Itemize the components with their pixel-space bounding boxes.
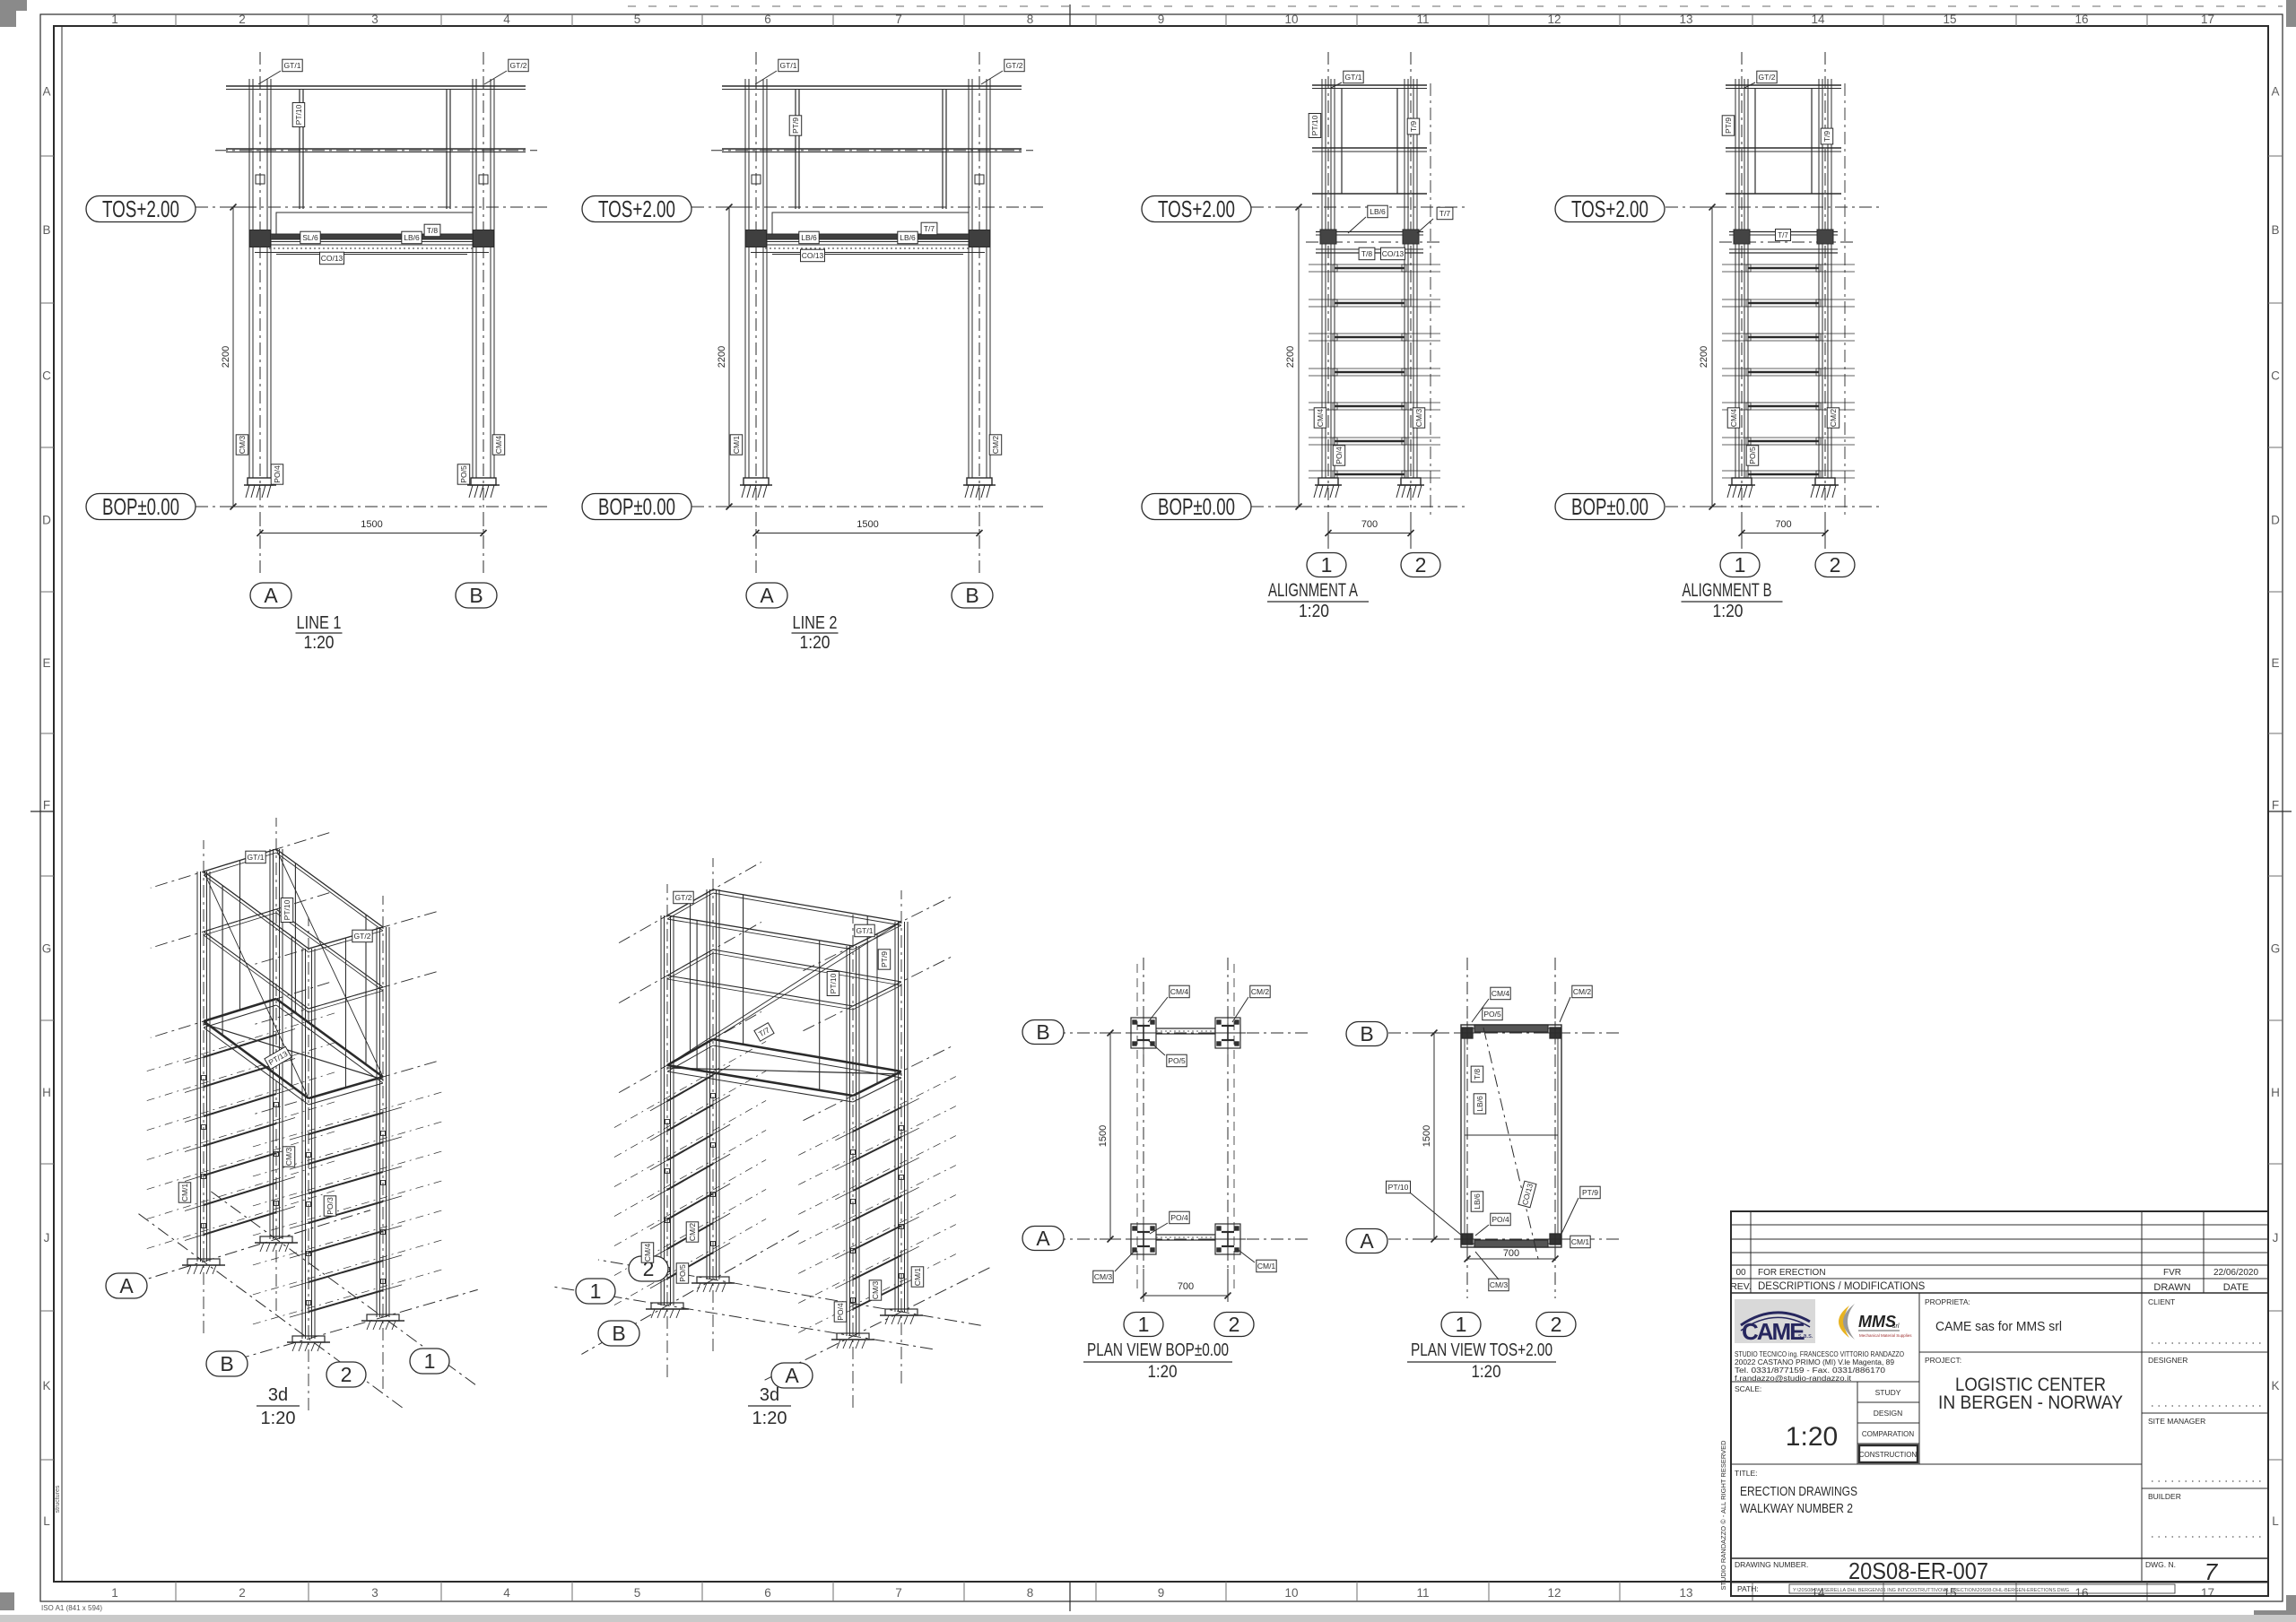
svg-text:BOP±0.00: BOP±0.00 — [598, 493, 675, 520]
svg-text:TOS+2.00: TOS+2.00 — [1571, 195, 1648, 222]
svg-text:B: B — [42, 223, 50, 237]
svg-text:CM/4: CM/4 — [494, 436, 503, 455]
svg-text:PLAN VIEW BOP±0.00: PLAN VIEW BOP±0.00 — [1087, 1340, 1229, 1360]
svg-text:C: C — [42, 369, 51, 383]
svg-text:SITE MANAGER: SITE MANAGER — [2148, 1417, 2205, 1426]
svg-text:1500: 1500 — [1098, 1125, 1109, 1147]
svg-text:CM/3: CM/3 — [238, 436, 247, 455]
svg-text:C: C — [2271, 369, 2280, 383]
svg-text:GT/2: GT/2 — [510, 61, 527, 70]
svg-text:1:20: 1:20 — [752, 1409, 787, 1428]
svg-text:A: A — [119, 1274, 134, 1297]
svg-text:CAME sas for MMS srl: CAME sas for MMS srl — [1935, 1320, 2062, 1334]
svg-text:16: 16 — [2074, 1586, 2088, 1600]
svg-text:PO/4: PO/4 — [273, 465, 282, 483]
svg-text:PT/9: PT/9 — [1724, 117, 1733, 134]
svg-text:LB/6: LB/6 — [404, 233, 420, 242]
svg-text:H: H — [2271, 1086, 2280, 1099]
svg-text:CM/4: CM/4 — [1316, 409, 1325, 428]
svg-text:2: 2 — [341, 1363, 352, 1386]
svg-text:PO/4: PO/4 — [1170, 1213, 1188, 1222]
svg-text:CM/2: CM/2 — [688, 1223, 697, 1242]
svg-text:CM/1: CM/1 — [913, 1268, 922, 1287]
svg-text:PT/10: PT/10 — [1388, 1183, 1409, 1192]
svg-text:STUDIO TECNICO ing. FRANCESCO: STUDIO TECNICO ing. FRANCESCO VITTORIO R… — [1735, 1350, 1904, 1358]
svg-text:T/7: T/7 — [1439, 209, 1451, 218]
svg-text:F: F — [43, 799, 50, 812]
svg-text:A: A — [42, 85, 50, 99]
svg-text:GT/2: GT/2 — [1006, 61, 1023, 70]
svg-text:A: A — [264, 584, 278, 607]
svg-text:13: 13 — [1679, 1586, 1692, 1600]
svg-text:D: D — [42, 514, 51, 527]
svg-text:2: 2 — [1551, 1313, 1562, 1336]
svg-text:GT/1: GT/1 — [284, 61, 301, 70]
svg-text:s.a.s.: s.a.s. — [1798, 1333, 1813, 1340]
svg-text:DESIGN: DESIGN — [1874, 1409, 1903, 1418]
svg-text:PATH:: PATH: — [1737, 1584, 1759, 1593]
svg-text:LB/6: LB/6 — [900, 233, 916, 242]
svg-text:GT/1: GT/1 — [780, 61, 797, 70]
svg-text:700: 700 — [1775, 519, 1791, 530]
svg-text:LB/6: LB/6 — [1475, 1096, 1484, 1112]
svg-text:TOS+2.00: TOS+2.00 — [598, 195, 675, 222]
svg-text:G: G — [2271, 942, 2281, 956]
svg-text:1: 1 — [590, 1279, 602, 1303]
svg-text:1:20: 1:20 — [800, 633, 831, 653]
svg-text:BOP±0.00: BOP±0.00 — [1158, 493, 1235, 520]
svg-text:PT/9: PT/9 — [880, 951, 889, 967]
svg-text:ALIGNMENT A: ALIGNMENT A — [1268, 580, 1358, 601]
svg-text:22/06/2020: 22/06/2020 — [2213, 1268, 2258, 1278]
svg-text:DWG. N.: DWG. N. — [2145, 1560, 2176, 1569]
svg-text:12: 12 — [1547, 1586, 1561, 1600]
svg-text:00: 00 — [1735, 1268, 1746, 1278]
svg-text:BOP±0.00: BOP±0.00 — [1571, 493, 1648, 520]
svg-text:PROJECT:: PROJECT: — [1925, 1356, 1961, 1365]
svg-text:T/7: T/7 — [1778, 231, 1788, 239]
svg-text:1:20: 1:20 — [1148, 1363, 1178, 1382]
svg-text:GT/1: GT/1 — [248, 853, 265, 862]
svg-text:2: 2 — [239, 1586, 246, 1600]
svg-text:1: 1 — [1321, 553, 1333, 577]
svg-text:G: G — [42, 942, 52, 956]
svg-text:1: 1 — [1735, 553, 1746, 577]
svg-text:PLAN VIEW TOS+2.00: PLAN VIEW TOS+2.00 — [1411, 1340, 1552, 1360]
svg-text:1: 1 — [424, 1349, 436, 1373]
svg-text:K: K — [42, 1379, 50, 1392]
svg-text:H: H — [42, 1086, 51, 1099]
svg-text:11: 11 — [1416, 1586, 1429, 1600]
svg-text:CM/1: CM/1 — [1571, 1237, 1590, 1246]
svg-text:CM/1: CM/1 — [1257, 1262, 1276, 1271]
svg-text:GT/1: GT/1 — [1345, 73, 1362, 82]
svg-text:DESIGNER: DESIGNER — [2148, 1356, 2187, 1365]
svg-text:3d: 3d — [268, 1385, 288, 1405]
svg-text:B: B — [2271, 223, 2279, 237]
svg-text:T/7: T/7 — [924, 224, 935, 233]
svg-text:CLIENT: CLIENT — [2148, 1297, 2175, 1306]
svg-text:DESCRIPTIONS / MODIFICATIONS: DESCRIPTIONS / MODIFICATIONS — [1758, 1281, 1926, 1292]
svg-text:1:20: 1:20 — [1472, 1363, 1501, 1382]
svg-text:1:20: 1:20 — [1786, 1422, 1838, 1452]
svg-text:L: L — [2272, 1514, 2279, 1528]
svg-text:1500: 1500 — [857, 519, 878, 530]
svg-text:PO/5: PO/5 — [678, 1264, 687, 1282]
svg-text:STUDIO RANDAZZO © - ALL RIGHT: STUDIO RANDAZZO © - ALL RIGHT RESERVED — [1719, 1440, 1727, 1591]
svg-text:CM/3: CM/3 — [871, 1281, 880, 1300]
svg-text:9: 9 — [1158, 13, 1165, 26]
svg-text:14: 14 — [1811, 13, 1825, 26]
svg-text:1: 1 — [111, 13, 118, 26]
svg-text:A: A — [2271, 85, 2279, 99]
svg-text:CM/2: CM/2 — [1251, 987, 1270, 996]
svg-text:structures: structures — [55, 1485, 61, 1513]
svg-text:BOP±0.00: BOP±0.00 — [102, 493, 179, 520]
svg-text:2: 2 — [239, 13, 246, 26]
svg-text:PT/10: PT/10 — [294, 104, 303, 125]
svg-text:6: 6 — [764, 13, 771, 26]
svg-text:BUILDER: BUILDER — [2148, 1492, 2181, 1501]
svg-text:CONSTRUCTION: CONSTRUCTION — [1859, 1451, 1918, 1459]
svg-text:STUDY: STUDY — [1875, 1388, 1901, 1397]
svg-text:4: 4 — [503, 1586, 510, 1600]
svg-text:CM/3: CM/3 — [284, 1148, 293, 1167]
svg-text:PT/9: PT/9 — [791, 117, 800, 134]
svg-text:WALKWAY NUMBER 2: WALKWAY NUMBER 2 — [1740, 1502, 1853, 1516]
svg-text:16: 16 — [2074, 13, 2088, 26]
svg-text:7: 7 — [895, 13, 902, 26]
svg-text:PO/5: PO/5 — [1748, 447, 1757, 464]
svg-text:700: 700 — [1178, 1281, 1194, 1292]
svg-text:20S08-ER-007: 20S08-ER-007 — [1848, 1557, 1988, 1584]
svg-text:B: B — [1036, 1020, 1049, 1044]
svg-text:CM/4: CM/4 — [643, 1244, 652, 1262]
svg-text:SCALE:: SCALE: — [1735, 1384, 1761, 1393]
svg-text:8: 8 — [1027, 1586, 1034, 1600]
svg-text:LINE 1: LINE 1 — [297, 613, 342, 633]
svg-text:CM/3: CM/3 — [1490, 1280, 1509, 1289]
svg-text:J: J — [2273, 1231, 2279, 1245]
svg-text:2200: 2200 — [1699, 346, 1709, 368]
svg-text:Y:\20S08 PASSERELLA DHL BERGEN: Y:\20S08 PASSERELLA DHL BERGEN\01 ING IN… — [1793, 1588, 2069, 1593]
svg-text:20022 CASTANO PRIMO (MI) V.le: 20022 CASTANO PRIMO (MI) V.le Magenta, 8… — [1735, 1358, 1894, 1366]
svg-text:15: 15 — [1943, 13, 1956, 26]
svg-text:FVR: FVR — [2163, 1268, 2181, 1278]
svg-text:12: 12 — [1547, 13, 1561, 26]
svg-text:PT/10: PT/10 — [283, 899, 291, 920]
svg-text:IN BERGEN - NORWAY: IN BERGEN - NORWAY — [1938, 1392, 2123, 1413]
svg-text:Tel. 0331/877159 - Fax. 0331/8: Tel. 0331/877159 - Fax. 0331/886170 — [1735, 1366, 1886, 1375]
svg-text:CM/1: CM/1 — [732, 436, 741, 455]
svg-text:T/8: T/8 — [427, 226, 439, 235]
svg-text:A: A — [1036, 1227, 1050, 1250]
svg-text:A: A — [760, 584, 774, 607]
svg-text:CM/3: CM/3 — [1414, 409, 1423, 428]
svg-text:DRAWN: DRAWN — [2153, 1282, 2190, 1293]
svg-text:SL/6: SL/6 — [302, 233, 318, 242]
svg-text:T/8: T/8 — [1473, 1069, 1482, 1080]
svg-text:CAME: CAME — [1742, 1318, 1805, 1345]
svg-text:3d: 3d — [760, 1385, 779, 1405]
svg-text:PO/5: PO/5 — [1168, 1056, 1186, 1065]
svg-text:2200: 2200 — [717, 346, 727, 368]
svg-text:MMS: MMS — [1858, 1313, 1896, 1331]
svg-text:1: 1 — [1138, 1313, 1150, 1336]
svg-text:B: B — [469, 584, 483, 607]
svg-text:PT/9: PT/9 — [1582, 1188, 1598, 1197]
svg-text:DATE: DATE — [2223, 1282, 2249, 1293]
svg-text:PO/5: PO/5 — [1483, 1010, 1501, 1019]
svg-text:CO/13: CO/13 — [1382, 249, 1405, 258]
svg-text:13: 13 — [1679, 13, 1692, 26]
svg-text:2: 2 — [1415, 553, 1427, 577]
svg-text:2: 2 — [1830, 553, 1841, 577]
svg-text:17: 17 — [2201, 1586, 2214, 1600]
svg-text:CO/13: CO/13 — [802, 251, 824, 260]
svg-text:srl: srl — [1892, 1323, 1900, 1330]
svg-text:E: E — [42, 656, 50, 670]
svg-text:F: F — [2272, 799, 2279, 812]
svg-text:1500: 1500 — [1422, 1125, 1432, 1147]
svg-text:17: 17 — [2201, 13, 2214, 26]
svg-text:FOR ERECTION: FOR ERECTION — [1758, 1268, 1826, 1278]
svg-text:Mechanical Material Supplies: Mechanical Material Supplies — [1859, 1333, 1912, 1338]
svg-text:2200: 2200 — [221, 346, 231, 368]
svg-text:7: 7 — [895, 1586, 902, 1600]
svg-text:PO/3: PO/3 — [326, 1197, 335, 1215]
svg-text:TOS+2.00: TOS+2.00 — [102, 195, 179, 222]
svg-text:2: 2 — [1229, 1313, 1240, 1336]
svg-text:GT/2: GT/2 — [1759, 73, 1776, 82]
svg-text:LB/6: LB/6 — [801, 233, 817, 242]
svg-text:CM/2: CM/2 — [991, 436, 1000, 455]
svg-text:LB/6: LB/6 — [1473, 1193, 1482, 1210]
svg-text:ISO A1 (841 x 594): ISO A1 (841 x 594) — [41, 1604, 102, 1612]
svg-text:B: B — [220, 1352, 233, 1375]
svg-text:T/9: T/9 — [1409, 121, 1418, 133]
svg-text:T/9: T/9 — [1822, 131, 1831, 143]
svg-text:GT/1: GT/1 — [857, 926, 874, 935]
svg-text:10: 10 — [1284, 1586, 1298, 1600]
svg-text:B: B — [612, 1322, 625, 1345]
svg-text:PROPRIETA:: PROPRIETA: — [1925, 1297, 1970, 1306]
svg-text:PO/5: PO/5 — [459, 465, 468, 483]
svg-text:REV.: REV. — [1730, 1281, 1752, 1292]
svg-text:700: 700 — [1503, 1248, 1519, 1259]
svg-text:TITLE:: TITLE: — [1735, 1469, 1758, 1478]
svg-text:GT/2: GT/2 — [675, 893, 692, 902]
svg-text:4: 4 — [503, 13, 510, 26]
svg-text:1: 1 — [111, 1586, 118, 1600]
svg-text:1:20: 1:20 — [304, 633, 335, 653]
svg-text:E: E — [2271, 656, 2279, 670]
svg-text:B: B — [1360, 1022, 1373, 1045]
svg-text:1500: 1500 — [361, 519, 382, 530]
svg-text:10: 10 — [1284, 13, 1298, 26]
svg-text:CM/1: CM/1 — [180, 1184, 189, 1202]
svg-text:LB/6: LB/6 — [1370, 207, 1386, 216]
svg-text:J: J — [44, 1231, 50, 1245]
svg-text:PT/10: PT/10 — [829, 973, 838, 993]
svg-text:TOS+2.00: TOS+2.00 — [1158, 195, 1235, 222]
svg-text:LINE 2: LINE 2 — [793, 613, 838, 633]
svg-text:CO/13: CO/13 — [321, 254, 344, 263]
svg-text:1:20: 1:20 — [261, 1409, 296, 1428]
svg-text:K: K — [2271, 1379, 2279, 1392]
svg-text:CM/2: CM/2 — [1829, 409, 1838, 428]
svg-text:ALIGNMENT B: ALIGNMENT B — [1683, 580, 1772, 601]
svg-text:GT/2: GT/2 — [354, 932, 371, 941]
svg-text:CM/3: CM/3 — [1094, 1272, 1113, 1281]
svg-text:7: 7 — [2205, 1558, 2219, 1585]
svg-text:CM/4: CM/4 — [1729, 409, 1738, 428]
svg-text:ERECTION DRAWINGS: ERECTION DRAWINGS — [1740, 1485, 1857, 1499]
svg-text:3: 3 — [371, 1586, 378, 1600]
svg-text:PT/10: PT/10 — [1310, 115, 1319, 135]
svg-text:L: L — [43, 1514, 50, 1528]
svg-text:A: A — [1360, 1229, 1374, 1253]
svg-text:5: 5 — [634, 13, 641, 26]
svg-text:D: D — [2271, 514, 2280, 527]
svg-text:9: 9 — [1158, 1586, 1165, 1600]
svg-text:3: 3 — [371, 13, 378, 26]
svg-text:8: 8 — [1027, 13, 1034, 26]
svg-text:11: 11 — [1416, 13, 1429, 26]
svg-text:DRAWING NUMBER.: DRAWING NUMBER. — [1735, 1560, 1808, 1569]
svg-text:5: 5 — [634, 1586, 641, 1600]
svg-text:1:20: 1:20 — [1713, 602, 1744, 621]
svg-text:CM/4: CM/4 — [1492, 989, 1510, 998]
svg-text:2200: 2200 — [1285, 346, 1296, 368]
svg-text:1: 1 — [1456, 1313, 1467, 1336]
svg-text:B: B — [965, 584, 978, 607]
svg-text:CM/2: CM/2 — [1573, 987, 1592, 996]
svg-text:1:20: 1:20 — [1299, 602, 1329, 621]
svg-text:700: 700 — [1361, 519, 1378, 530]
svg-text:T/8: T/8 — [1361, 249, 1373, 258]
svg-text:PO/4: PO/4 — [1335, 447, 1344, 464]
svg-text:PO/4: PO/4 — [1492, 1215, 1509, 1224]
svg-text:A: A — [785, 1364, 799, 1387]
svg-text:COMPARATION: COMPARATION — [1862, 1430, 1915, 1438]
svg-text:CM/4: CM/4 — [1170, 987, 1189, 996]
svg-text:PO/4: PO/4 — [836, 1303, 845, 1321]
svg-text:6: 6 — [764, 1586, 771, 1600]
